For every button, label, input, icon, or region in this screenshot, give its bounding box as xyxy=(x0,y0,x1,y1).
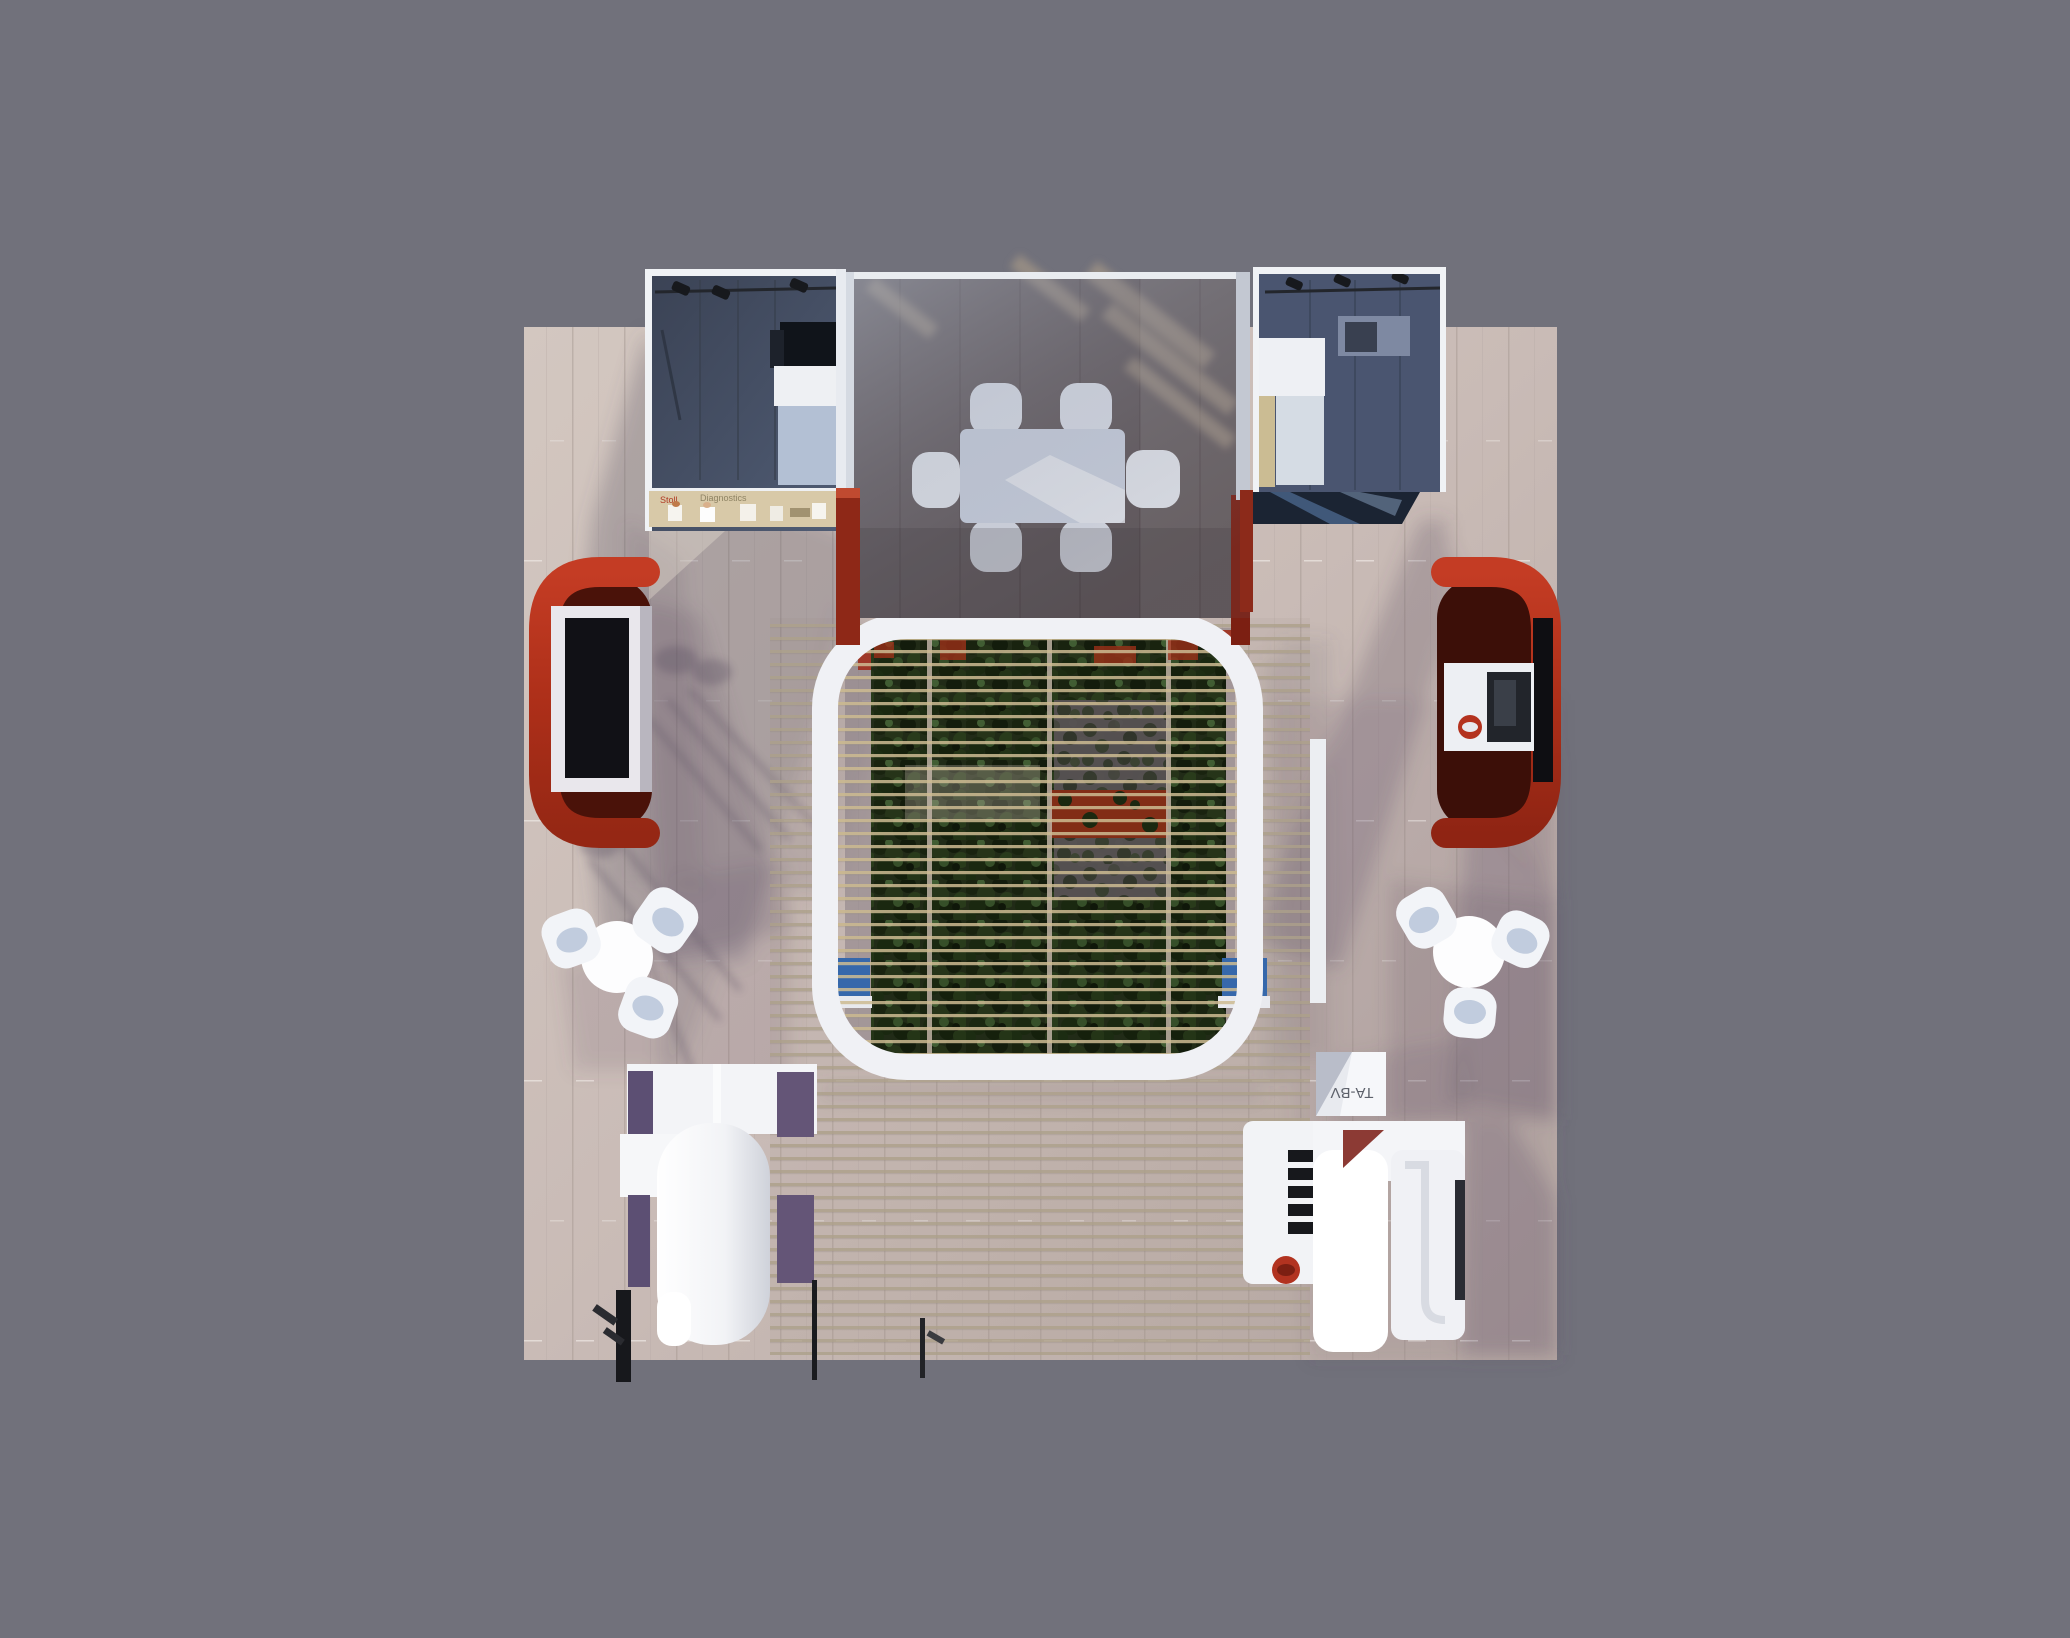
svg-text:Diagnostics: Diagnostics xyxy=(700,493,747,503)
svg-text:TA-BV: TA-BV xyxy=(1330,1084,1373,1101)
